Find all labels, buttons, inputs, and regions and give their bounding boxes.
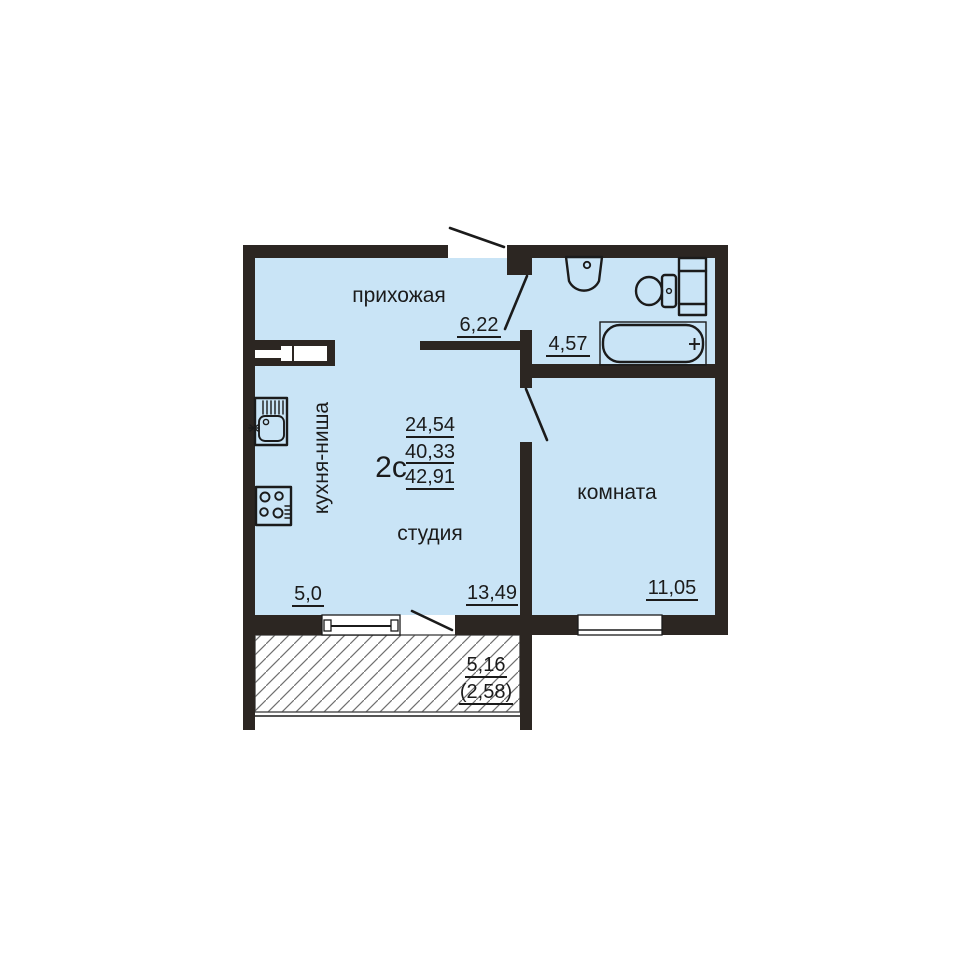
- studio-window-cap-left: [324, 620, 331, 631]
- room-window: [578, 615, 662, 635]
- hallway-area: 6,22: [460, 314, 499, 336]
- wall-left: [243, 245, 255, 730]
- balcony-area-coefficient: (2,58): [460, 681, 512, 703]
- wall-hallway-divider: [420, 341, 532, 350]
- wall-right: [715, 245, 728, 635]
- studio-label: студия: [397, 522, 463, 545]
- wall-bathroom-bottom: [532, 364, 728, 378]
- wall-entrance-pier: [507, 245, 532, 275]
- studio-window: [322, 615, 400, 635]
- wall-bottom-right: [662, 615, 728, 635]
- vent-duct-slot-2: [281, 346, 292, 361]
- floor-plan-page: прихожая 6,22 4,57 24,54 40,33 42,91 2с …: [0, 0, 960, 960]
- apartment-type-label: 2с: [375, 451, 407, 484]
- wall-top-left: [243, 245, 448, 258]
- wall-bottom-left: [243, 615, 322, 635]
- kitchen-niche-area: 5,0: [294, 583, 322, 605]
- area-total-with-balcony: 42,91: [405, 466, 455, 488]
- vent-duct-slot-3: [294, 346, 327, 361]
- area-total: 40,33: [405, 441, 455, 463]
- area-living: 24,54: [405, 414, 455, 436]
- kitchen-niche-label: кухня-ниша: [310, 402, 333, 515]
- ventilation-duct-icon: [249, 340, 335, 366]
- room-area: 11,05: [648, 577, 697, 599]
- hallway-label: прихожая: [352, 284, 446, 307]
- entrance-door-icon: [450, 228, 504, 247]
- studio-window-cap-right: [391, 620, 398, 631]
- studio-area: 13,49: [467, 582, 517, 604]
- wall-middle-upper: [520, 330, 532, 388]
- floor-plan: прихожая 6,22 4,57 24,54 40,33 42,91 2с …: [0, 0, 960, 960]
- bathroom-area: 4,57: [549, 333, 588, 355]
- wall-top-right: [532, 245, 728, 258]
- room-label: комната: [577, 481, 657, 504]
- balcony-area: 5,16: [467, 654, 506, 676]
- wall-bottom-middle: [455, 615, 578, 635]
- wall-middle-lower: [520, 442, 532, 730]
